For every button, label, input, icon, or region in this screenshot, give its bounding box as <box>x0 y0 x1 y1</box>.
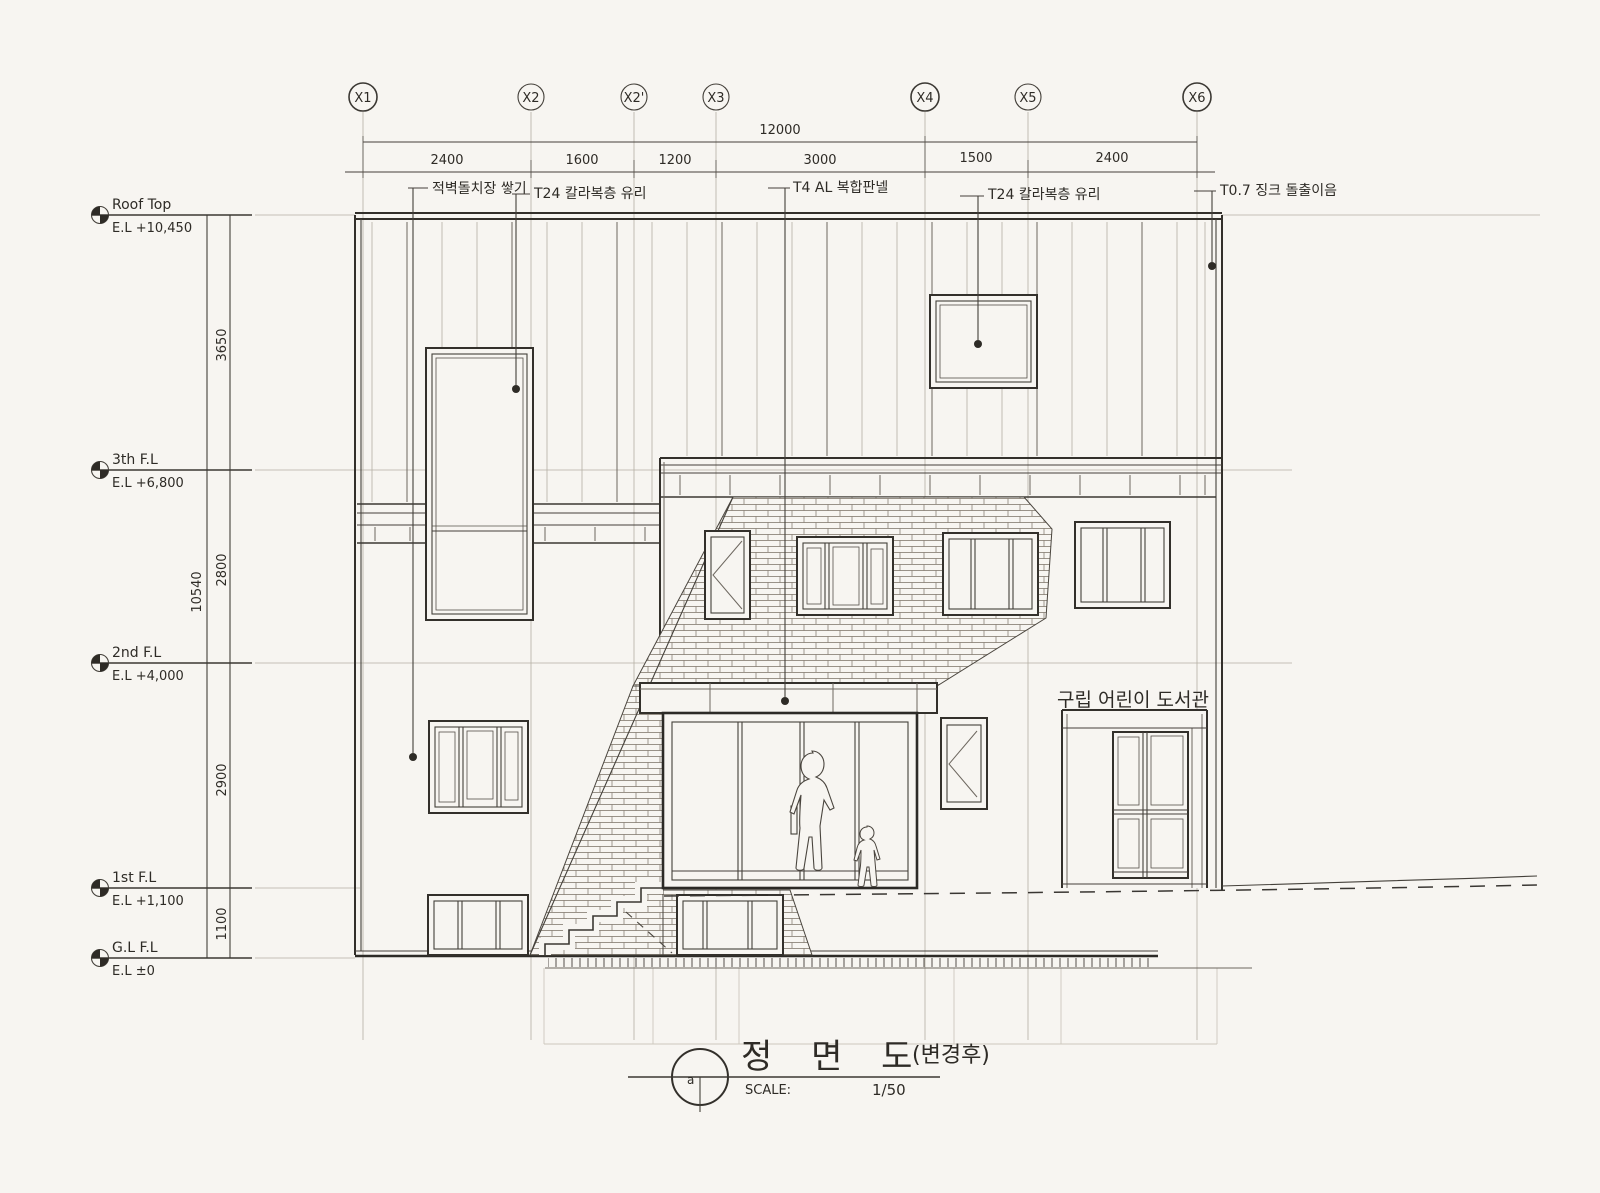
storefront-entrance <box>663 713 917 888</box>
level-marker-2f: 2nd F.L E.L +4,000 <box>92 645 253 684</box>
grid-label: X5 <box>1019 91 1036 106</box>
elevation-drawing-sheet: X1 X2 X2' X3 X4 X5 X6 12000 2400 1600 12… <box>0 0 1600 1193</box>
sliding-window-2f-far-right <box>1075 522 1170 608</box>
level-elevation: E.L +6,800 <box>112 476 184 491</box>
top-dimension-lines: 12000 2400 1600 1200 3000 1500 2400 <box>345 123 1215 178</box>
overall-dim: 12000 <box>759 123 800 138</box>
segment-dim: 2400 <box>430 153 463 168</box>
left-dimension-chain: 10540 3650 2800 2900 1100 <box>190 215 238 958</box>
basement-window-mid <box>677 895 783 955</box>
level-name: G.L F.L <box>112 940 158 956</box>
scale-label: SCALE: <box>745 1083 791 1098</box>
level-name: 1st F.L <box>112 870 156 886</box>
level-markers: Roof Top E.L +10,450 3th F.L E.L +6,800 … <box>92 197 253 979</box>
grid-label: X3 <box>707 91 724 106</box>
segment-dim: 3000 <box>803 153 836 168</box>
level-elevation: E.L +1,100 <box>112 894 184 909</box>
grid-label: X4 <box>916 91 933 106</box>
level-marker-roof: Roof Top E.L +10,450 <box>92 197 253 236</box>
grid-label: X2' <box>624 91 645 106</box>
segment-dim: 1200 <box>658 153 691 168</box>
entrance-canopy <box>640 683 937 713</box>
title-bubble-letter: a <box>687 1073 694 1087</box>
level-name: 3th F.L <box>112 452 158 468</box>
grid-label: X6 <box>1188 91 1205 106</box>
level-elevation: E.L +4,000 <box>112 669 184 684</box>
height-dim: 2900 <box>215 763 230 796</box>
casement-window-2f <box>705 531 750 619</box>
height-dim: 2800 <box>215 553 230 586</box>
grid-axis-row: X1 X2 X2' X3 X4 X5 X6 <box>349 83 1211 111</box>
grid-label: X2 <box>522 91 539 106</box>
upper-right-window <box>930 295 1037 388</box>
title-block: a 정 면 도 (변경후) SCALE: 1/50 <box>628 1037 990 1112</box>
level-marker-gl: G.L F.L E.L ±0 <box>92 940 253 979</box>
sliding-window-2f-center <box>797 537 893 615</box>
sliding-window-1f-left <box>429 721 528 813</box>
drawing-title-suffix: (변경후) <box>912 1043 990 1068</box>
overall-height-dim: 10540 <box>190 571 205 612</box>
drawing-title: 정 면 도 <box>741 1037 926 1077</box>
callout-label: 적벽돌치장 쌓기 <box>432 181 527 197</box>
level-elevation: E.L ±0 <box>112 964 155 979</box>
callout-label: T24 칼라복층 유리 <box>533 186 647 202</box>
segment-dim: 1500 <box>959 151 992 166</box>
level-marker-1f: 1st F.L E.L +1,100 <box>92 870 253 909</box>
height-dim: 3650 <box>215 328 230 361</box>
pavement-hatch <box>548 957 1155 968</box>
level-marker-3f: 3th F.L E.L +6,800 <box>92 452 253 491</box>
basement-window-left <box>428 895 528 955</box>
level-name: 2nd F.L <box>112 645 161 661</box>
callout-label: T24 칼라복층 유리 <box>987 187 1101 203</box>
callout-label: T4 AL 복합판넬 <box>792 180 888 196</box>
sliding-window-2f-right <box>943 533 1038 615</box>
level-elevation: E.L +10,450 <box>112 221 192 236</box>
grid-label: X1 <box>354 91 371 106</box>
height-dim: 1100 <box>215 907 230 940</box>
casement-window-1f-right <box>941 718 987 809</box>
callout-label: T0.7 징크 돌출이음 <box>1219 183 1337 199</box>
level-name: Roof Top <box>112 197 171 213</box>
front-elevation-svg: X1 X2 X2' X3 X4 X5 X6 12000 2400 1600 12… <box>0 0 1600 1193</box>
library-door: 구립 어린이 도서관 <box>1057 689 1209 888</box>
library-sign-text: 구립 어린이 도서관 <box>1057 689 1209 711</box>
scale-value: 1/50 <box>872 1081 906 1099</box>
segment-dim: 2400 <box>1095 151 1128 166</box>
segment-dim: 1600 <box>565 153 598 168</box>
